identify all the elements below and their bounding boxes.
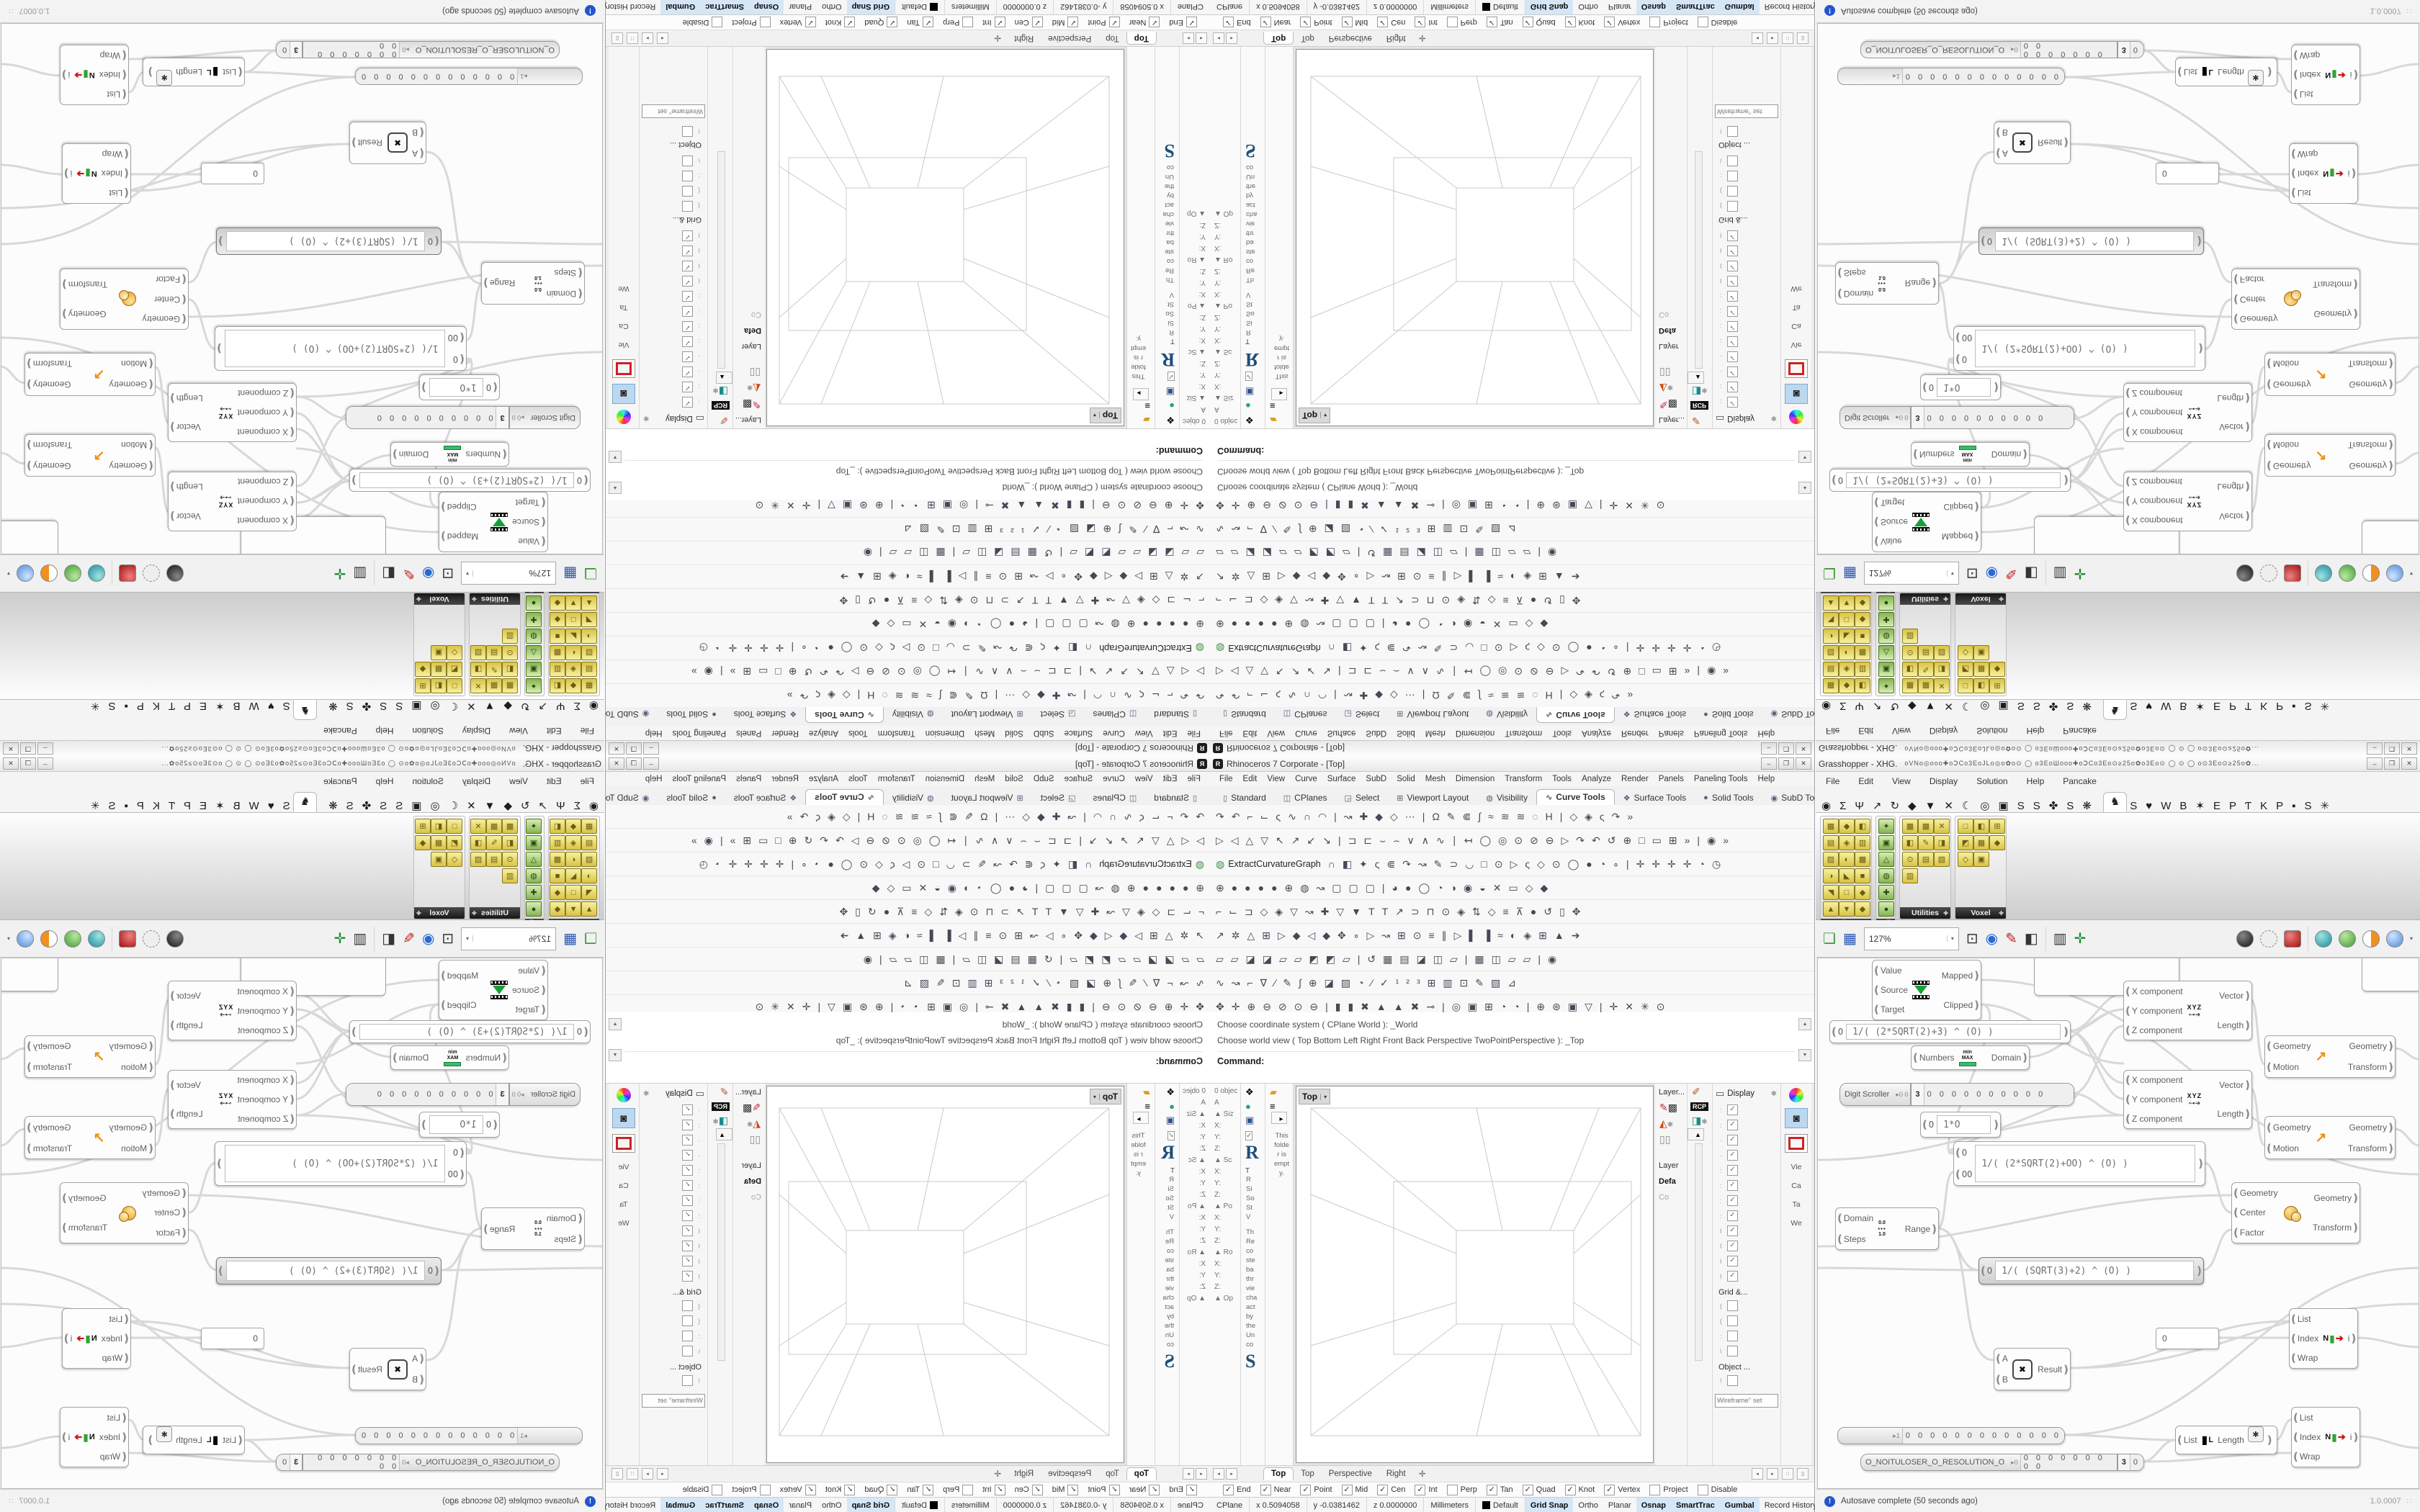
expression-text[interactable]: 1*O (429, 378, 483, 397)
checkbox[interactable]: ✓ (1260, 1485, 1271, 1495)
expression-text[interactable]: 1/( (2*SQRT(2)+3) ^ (O) ) (359, 1024, 574, 1040)
expression-text[interactable]: 1*O (1937, 378, 1991, 397)
osnap-item[interactable]: ✓ Int (1415, 1485, 1437, 1495)
display-option-row[interactable]: I ✓ (1713, 1238, 1780, 1254)
gh-number-slider[interactable]: ▸1 0 0 0 0 0 0 0 0 0 0 0 0 0 (1837, 1427, 2065, 1444)
toolbar-row-1[interactable]: ↷↶⌐⌙ς∿∩◠|↝✚◆◇⋯|Ω✎⋐∫≈≋≋◌Η|◇◈ς↷» (1216, 690, 1640, 702)
menu-item[interactable]: Panels (731, 729, 766, 737)
extract-curvature-graph-button[interactable]: ◍ ExtractCurvatureGraph (1099, 858, 1204, 870)
display-option-row[interactable]: : ✓ (1713, 334, 1780, 349)
menu-item[interactable]: Help (376, 776, 394, 786)
checkbox[interactable]: ✓ (1727, 1241, 1738, 1251)
zoom-extents-icon[interactable]: ⊡ (442, 564, 454, 582)
component-icon[interactable]: △ (526, 645, 542, 660)
menu-item[interactable]: Tools (843, 729, 873, 737)
checkbox[interactable] (962, 17, 973, 28)
menu-item[interactable]: Curve (1098, 729, 1130, 737)
viewport-tab[interactable]: Right (1007, 1468, 1041, 1480)
tab-scroll-right[interactable]: ▸ (1183, 32, 1194, 44)
display-option-row[interactable]: : ✓ (1713, 289, 1780, 304)
gh-node-list-item[interactable]: (List (Index (Wrap N▮➔ i) (2291, 45, 2360, 105)
expression-text[interactable]: 1*O (429, 1115, 483, 1134)
material-green-icon[interactable] (64, 930, 81, 948)
checkbox[interactable]: ✓ (1068, 17, 1079, 28)
close-button[interactable]: ✕ (3, 742, 19, 755)
component-icon[interactable]: ▩ (502, 819, 518, 834)
osnap-item[interactable]: ✓ Mid (1342, 1485, 1368, 1495)
panel-tab-label[interactable]: Vie (609, 341, 639, 359)
component-icon[interactable]: ◆ (1989, 662, 2005, 677)
component-icon[interactable]: ◧ (431, 819, 447, 834)
expand-icon[interactable]: ▸ (1133, 388, 1149, 400)
sketch-pen-icon[interactable]: ✎ (2005, 930, 2017, 948)
osnap-item[interactable]: Perp (943, 1485, 973, 1495)
gh-node-scale[interactable]: (Geometry (Center (Factor Geometry) Tran… (2231, 1182, 2360, 1243)
toolbar-tab[interactable]: ● Solid Tools (1695, 707, 1762, 721)
checkbox[interactable]: ✓ (682, 230, 693, 241)
menu-item[interactable]: Render (766, 775, 804, 783)
component-icon[interactable]: ◧ (1973, 819, 1989, 834)
checkbox[interactable]: ✓ (1727, 397, 1738, 408)
component-icon[interactable]: ▲ (581, 901, 597, 917)
expression-text[interactable]: 1/( (2*SQRT(2)+OO) ^ (O) ) (225, 1145, 445, 1182)
component-icon[interactable]: ▤ (1918, 852, 1934, 867)
gh-node-construct-domain[interactable]: (Numbers minMAX Domain) (390, 442, 509, 467)
checkbox[interactable] (1649, 17, 1660, 28)
panel-tab-label[interactable]: Ca (609, 1171, 639, 1190)
checkbox[interactable]: ✓ (682, 1271, 693, 1282)
component-icon[interactable]: ▼ (565, 595, 581, 611)
toolbar-tab[interactable]: ◲ Select (1032, 707, 1085, 721)
checkbox[interactable]: ✓ (1377, 17, 1388, 28)
rhino-titlebar[interactable]: R Rhinoceros 7 Corporate - [Top] – ❒ ✕ (1210, 756, 1814, 772)
component-icon[interactable]: ◑ (1823, 868, 1839, 883)
toolbar-row-4[interactable]: ⊕●●●●⊕◍↝▢▢▢|◕●◯◔◑◉◒✕▭◇◆ (1216, 882, 1555, 894)
menu-item[interactable]: Solution (412, 726, 443, 736)
checkbox[interactable]: ✓ (682, 1180, 693, 1191)
gh-node-move[interactable]: (Geometry (Motion ↗ Geometry) Transform) (2264, 1035, 2396, 1078)
toolbar-tab[interactable]: ◲ Select (1336, 707, 1389, 721)
asterisk-button[interactable]: ✱ (2248, 70, 2264, 86)
preview-eye-icon[interactable]: ◉ (1986, 930, 1998, 948)
menu-item[interactable]: View (1130, 729, 1158, 737)
scroll-down-button[interactable]: ▼ (1798, 451, 1811, 463)
spray-icon[interactable]: ✐ (708, 413, 732, 428)
component-icon[interactable]: ▥ (1855, 662, 1870, 677)
menu-item[interactable]: Help (1752, 729, 1780, 737)
component-icon[interactable]: ◨ (1934, 835, 1950, 850)
gh-node-list-item[interactable]: (List (Index (Wrap N▮➔ i) (60, 1407, 129, 1467)
preview-shaded-icon[interactable] (2284, 930, 2301, 948)
checkbox[interactable]: ✓ (682, 382, 693, 392)
nav-pane-icon[interactable]: ▯ (611, 32, 623, 44)
component-icon[interactable]: ◍ (1878, 629, 1894, 644)
viewport-top[interactable]: Top▾ (766, 1086, 1124, 1463)
checkbox[interactable]: ✓ (682, 1104, 693, 1115)
nav-pane-icon[interactable]: ▯ (1797, 32, 1809, 44)
folder-panel-sliver[interactable]: ▰ ≡ ▸ Thisfolder isempty. (1265, 1084, 1294, 1465)
gh-node-list-item[interactable]: (List (Index (Wrap N▮➔ i) (62, 143, 131, 204)
scroll-up-icon[interactable]: ▲ (716, 372, 732, 384)
checkbox[interactable]: ✓ (1604, 1485, 1615, 1495)
help-panel-sliver[interactable]: ❖ ● ▣ ✓ R T RSiSoStV ThRecostebathrviech… (1241, 1084, 1265, 1465)
osnap-item[interactable]: ✓ Mid (1052, 1485, 1079, 1495)
component-icon[interactable]: ▼ (565, 901, 581, 917)
color-wheel-icon[interactable] (1789, 1088, 1803, 1102)
menu-item[interactable]: Edit (1238, 729, 1263, 737)
preview-off-icon[interactable] (2236, 565, 2254, 582)
toolbar-row-3[interactable]: ∩◧✦ς⋐↷↝✎⊃◡□⊙▷ς◇⊙◯●◔∘|✛✛✛✛◔◷ (692, 642, 1092, 654)
minimize-button[interactable]: – (2367, 757, 2383, 770)
menu-item[interactable]: SubD (1028, 775, 1059, 783)
component-icon[interactable]: ◈ (565, 662, 581, 677)
open-file-icon[interactable]: ❏ (584, 930, 597, 948)
resize-grip-icon[interactable]: ∷ (2407, 7, 2411, 15)
checkbox[interactable]: ✓ (923, 1485, 933, 1495)
tools-panel-sliver[interactable]: ✐ RCP ◨✱ ▲ (1688, 1084, 1713, 1465)
gh-node-expression-small[interactable]: (O 1*O ) (1920, 1112, 2001, 1138)
toolbar-row-8[interactable]: ∿↝⌐∇∕✎∫⊕◪▨◔∕✓¹²³⊞▥⊡✎▧⊿ (897, 977, 1204, 989)
default-layer-name[interactable]: Defa (733, 1173, 765, 1189)
component-icon[interactable]: ◧ (1855, 819, 1870, 834)
checkbox-icon[interactable]: ✓ (1155, 372, 1179, 386)
gh-node-remap[interactable]: (Value (Source (Target Mapped) Clipped) (1872, 960, 1981, 1020)
menu-item[interactable]: File (1826, 776, 1839, 786)
category-tab-icons-right[interactable]: S♥WB✶EPƬKP▪S✳ (2130, 799, 2338, 812)
component-icon[interactable]: ✚ (1878, 885, 1894, 900)
component-icon[interactable]: ◥ (1823, 885, 1839, 900)
osnap-item[interactable]: ✓ Knot (1565, 17, 1595, 28)
toolbar-tab[interactable]: ◫ CPlanes (1275, 707, 1336, 721)
osnap-item[interactable]: ✓ Cen (1015, 17, 1043, 28)
checkbox[interactable]: ✓ (682, 397, 693, 408)
status-toggle[interactable]: Gumbal (660, 1498, 700, 1512)
component-icon[interactable]: ▣ (1878, 835, 1894, 850)
nav-split-icon[interactable]: ∷ (627, 32, 638, 44)
chevron-down-icon[interactable]: ▾ (7, 935, 10, 942)
close-button[interactable]: ✕ (609, 757, 624, 770)
material-teal-icon[interactable] (2315, 565, 2332, 582)
component-icon[interactable]: ✎ (1918, 662, 1934, 677)
maximize-button[interactable]: ❒ (2384, 757, 2400, 770)
display-option-row[interactable]: ( (640, 199, 707, 214)
gh-node-vector-xyz[interactable]: (X component (Y component (Z component X… (168, 472, 297, 531)
chevron-down-icon[interactable]: ▾ (2410, 935, 2413, 942)
status-toggle[interactable]: Grid Snap (1525, 0, 1574, 14)
component-icon[interactable]: ◆ (550, 595, 565, 611)
viewport-label[interactable]: Top▾ (1299, 1089, 1330, 1104)
pencil-icon[interactable]: ✎▩ (1655, 1099, 1687, 1115)
rhino-titlebar[interactable]: R Rhinoceros 7 Corporate - [Top] – ❒ ✕ (606, 756, 1210, 772)
component-icon[interactable]: ◧ (431, 678, 447, 693)
osnap-item[interactable]: ✓ Vertex (780, 1485, 816, 1495)
component-icon[interactable]: ▤ (581, 662, 597, 677)
menu-item[interactable]: Edit (1858, 726, 1873, 736)
material-orange-icon[interactable] (40, 930, 58, 948)
toolbar-tab[interactable]: ⊞ Viewport Layout (943, 791, 1032, 805)
checkbox[interactable]: ✓ (805, 1485, 816, 1495)
camera-widget-icon[interactable]: ◧ (382, 564, 395, 582)
panel-tab-strip[interactable]: ◙ VieCaTaWe (609, 47, 639, 428)
menu-item[interactable]: View (1892, 776, 1911, 786)
folder-panel-sliver[interactable]: ▰ ≡ ▸ Thisfolder isempty. (1265, 47, 1294, 428)
status-toggle[interactable]: Osnap (1636, 0, 1671, 14)
component-icon[interactable]: ▩ (1902, 819, 1918, 834)
component-icon[interactable]: ▣ (1973, 645, 1989, 660)
component-icon[interactable]: ◩ (1958, 662, 1973, 677)
toolbar-tab[interactable]: ▯ Standard (1214, 791, 1275, 805)
component-icon[interactable]: ▧ (470, 645, 486, 660)
gh-node-expression-selected[interactable]: (O 1/( (SQRT(3)+2) ^ (O) ) ) (216, 1257, 442, 1284)
display-option-row[interactable]: · ✓ (1713, 364, 1780, 379)
material-blue-icon[interactable] (2386, 565, 2403, 582)
status-toggle[interactable]: SmartTrac (1671, 0, 1720, 14)
add-viewport-icon[interactable]: ✛ (988, 33, 1007, 43)
component-icon[interactable]: ▦ (486, 819, 502, 834)
checkbox[interactable]: ✓ (682, 1210, 693, 1221)
osnap-item[interactable]: ✓ Mid (1342, 17, 1368, 28)
component-icon[interactable]: △ (1878, 852, 1894, 867)
menu-item[interactable]: SubD (1028, 729, 1059, 737)
component-icon[interactable]: ▲ (1823, 595, 1839, 611)
osnap-item[interactable]: ✓ Quad (1523, 17, 1556, 28)
menu-item[interactable]: Solution (1976, 726, 2007, 736)
menu-item[interactable]: Analyze (1577, 729, 1616, 737)
expression-text[interactable]: 1/( (2*SQRT(2)+OO) ^ (O) ) (1975, 1145, 2195, 1182)
checkbox[interactable]: ✓ (1109, 17, 1120, 28)
checkbox[interactable]: ✓ (1727, 1150, 1738, 1161)
gh-node-list-item[interactable]: (List (Index (Wrap N▮➔ i) (60, 45, 129, 105)
extract-curvature-graph-button[interactable]: ◍ ExtractCurvatureGraph (1099, 642, 1204, 654)
osnap-item[interactable]: ✓ Knot (825, 17, 856, 28)
checkbox[interactable]: ✓ (682, 291, 693, 302)
menu-item[interactable]: Edit (1158, 775, 1183, 783)
component-icon[interactable]: □ (565, 885, 581, 900)
checkbox[interactable]: ✓ (1186, 1485, 1197, 1495)
display-mode-dropdown[interactable]: Wireframe" set (1715, 104, 1778, 118)
cplane-cell[interactable]: CPlane (1210, 1498, 1250, 1512)
scroll-up-button[interactable]: ▲ (1798, 1018, 1811, 1030)
panel-tab-strip[interactable]: ◙ VieCaTaWe (1781, 1084, 1811, 1465)
checkbox[interactable] (1727, 1375, 1738, 1386)
camera-teal-icon[interactable]: ◨✱ (1688, 384, 1712, 400)
toolbar-row-2[interactable]: ▷◁△▽↖↗↙↘|⊐⊏⌣⌢∨∧∿∣↤◯◎⊙⊘⊖▷↷↶↺⊕□▭⊞»|◉» (1216, 834, 1736, 847)
component-icon[interactable]: ✕ (1934, 819, 1950, 834)
checkbox[interactable]: ✓ (1727, 1210, 1738, 1221)
checkbox[interactable]: ✓ (682, 1241, 693, 1251)
component-icon[interactable]: ◥ (581, 612, 597, 627)
checkbox[interactable]: ✓ (682, 1165, 693, 1176)
asterisk-button[interactable]: ✱ (156, 1426, 172, 1442)
close-button[interactable]: ✕ (1796, 742, 1811, 755)
component-icon[interactable]: ▤ (581, 835, 597, 850)
toolbar-tab[interactable]: ▯ Standard (1145, 791, 1206, 805)
material-green-icon[interactable] (2339, 565, 2356, 582)
viewport-tab[interactable]: Top (1263, 1467, 1294, 1480)
osnap-item[interactable]: Disable (1698, 17, 1738, 28)
component-icon[interactable]: ◈ (565, 835, 581, 850)
command-area[interactable]: Choose coordinate system ( CPlane World … (606, 1012, 1210, 1084)
menu-item[interactable]: Surface (1322, 729, 1361, 737)
menu-item[interactable]: Pancake (323, 776, 357, 786)
save-icon[interactable]: ▦ (563, 930, 577, 948)
scroll-down-button[interactable]: ▼ (609, 451, 622, 463)
checkbox[interactable] (682, 126, 693, 137)
component-icon[interactable]: ▥ (550, 662, 565, 677)
display-option-row[interactable]: : ✓ (640, 1208, 707, 1223)
minimize-button[interactable]: – (643, 742, 659, 755)
scroll-down-button[interactable]: ▼ (609, 1049, 622, 1061)
gh-node-vector-xyz[interactable]: (X component (Y component (Z component X… (2123, 472, 2252, 531)
component-icon[interactable]: ▦ (581, 819, 597, 834)
resize-grip-icon[interactable]: ∷ (9, 7, 13, 15)
component-icon[interactable]: ◆ (1839, 678, 1855, 693)
toolbar-tab[interactable]: ● Solid Tools (658, 707, 725, 721)
osnap-item[interactable]: ✓ Knot (1565, 1485, 1595, 1495)
osnap-item[interactable]: ✓ Vertex (1604, 17, 1640, 28)
osnap-item[interactable]: Disable (1698, 1485, 1738, 1495)
checkbox[interactable]: ✓ (1727, 1104, 1738, 1115)
status-toggle[interactable]: Planar (1603, 1498, 1636, 1512)
display-option-row[interactable]: : ✓ (1713, 379, 1780, 395)
component-icon[interactable]: ⊞ (1989, 678, 2005, 693)
checkbox[interactable]: ✓ (1727, 321, 1738, 332)
scrollbar[interactable] (1695, 1143, 1703, 1361)
component-icon[interactable]: ◣ (1839, 629, 1855, 644)
zoom-extents-icon[interactable]: ⊡ (1966, 930, 1978, 948)
expand-icon[interactable]: ▸ (1271, 1112, 1287, 1124)
component-icon[interactable]: ◆ (415, 835, 431, 850)
component-icon[interactable]: ▣ (431, 852, 447, 867)
component-icon[interactable]: ◨ (470, 835, 486, 850)
component-icon[interactable]: ◆ (565, 819, 581, 834)
checkbox[interactable]: ✓ (682, 306, 693, 317)
menu-item[interactable]: Dimension (920, 729, 969, 737)
menu-item[interactable]: SubD (1361, 729, 1391, 737)
component-icon[interactable]: ◧ (502, 835, 518, 850)
component-icon[interactable]: ◧ (1973, 678, 1989, 693)
gh-node-list-length[interactable]: (List ▮L Length ✱ ) (2175, 58, 2277, 86)
preview-shaded-icon[interactable] (2284, 565, 2301, 582)
gh-resolution-slider[interactable]: O_NOITULOSER_O_RESOLUTION_O ▸0 0 0 0 0 0… (276, 1454, 560, 1471)
active-layer-cell[interactable]: Default (895, 1498, 944, 1512)
component-icon[interactable]: ● (526, 901, 542, 917)
nav-left-icon[interactable]: ◂ (1752, 32, 1763, 44)
spray-icon[interactable]: ✐ (1688, 1084, 1712, 1099)
menu-item[interactable]: Curve (1290, 775, 1322, 783)
gh-node-list-item[interactable]: (List (Index (Wrap N▮➔ i) (2289, 143, 2358, 204)
osnap-item[interactable]: ✓ End (1169, 17, 1197, 28)
gh-node-remap[interactable]: (Value (Source (Target Mapped) Clipped) (439, 492, 548, 552)
component-icon[interactable]: ◩ (447, 662, 462, 677)
display-option-row[interactable]: ( (1713, 1313, 1780, 1328)
menu-item[interactable]: Mesh (1420, 775, 1451, 783)
component-icon[interactable]: ▦ (431, 662, 447, 677)
gh-node-list-item[interactable]: (List (Index (Wrap N▮➔ i) (62, 1308, 131, 1369)
color-wheel-icon[interactable] (1789, 410, 1803, 424)
component-icon[interactable]: ▧ (470, 852, 486, 867)
checkbox[interactable]: ✓ (1727, 336, 1738, 347)
minimize-button[interactable]: – (2367, 742, 2383, 755)
toolbar-row-9[interactable]: ✥✛⊕⊖⊘⊙⊖|▮▮✖▲▲✖⊸|◎▣⊞◔◔|⊕⊛▣▽|✛✕✳⊙ (1216, 500, 1672, 512)
checkbox[interactable] (760, 17, 771, 28)
add-viewport-icon[interactable]: ✛ (1413, 33, 1432, 43)
gh-node-scale[interactable]: (Geometry (Center (Factor Geometry) Tran… (60, 269, 189, 330)
camera-teal-icon[interactable]: ◨✱ (708, 384, 732, 400)
gh-node-vector-xyz[interactable]: (X component (Y component (Z component X… (2123, 981, 2252, 1040)
palette-label[interactable]: Voxel✚ (1955, 907, 2006, 919)
display-option-row[interactable]: I ✓ (640, 1254, 707, 1269)
osnap-item[interactable]: ✓ Point (1088, 1485, 1120, 1495)
tab-scroll-left[interactable]: ◂ (1213, 1468, 1224, 1480)
menu-item[interactable]: View (1262, 775, 1290, 783)
toolbar-tab[interactable]: ❖ Surface Tools (1615, 707, 1695, 721)
properties-panel-sliver[interactable]: 0 objecA▲ SizX:Y:Z:▲ ScX:Y:Z:▲ PoX:Y:Z:▲… (1210, 1084, 1241, 1465)
component-icon[interactable]: □ (447, 678, 462, 693)
menu-item[interactable]: Mesh (1420, 729, 1451, 737)
camera-tab-icon[interactable]: ◙ (612, 384, 635, 404)
gh-node-expression[interactable]: (O 1/( (2*SQRT(2)+3) ^ (O) ) ) (1829, 1020, 2071, 1043)
expression-text[interactable]: 1/( (2*SQRT(2)+OO) ^ (O) ) (1975, 330, 2195, 367)
display-option-row[interactable]: \ (640, 1344, 707, 1359)
osnap-item[interactable]: ✓ Knot (825, 1485, 856, 1495)
status-toggle[interactable]: Grid Snap (847, 1498, 895, 1512)
gear-icon[interactable]: ✱ (1771, 415, 1779, 423)
checkbox[interactable]: ✓ (682, 1256, 693, 1266)
expand-icon[interactable]: ▸ (1133, 1112, 1149, 1124)
display-panel[interactable]: ▭ Display ✱ : ✓ : ✓ (639, 47, 707, 428)
checkbox-icon[interactable]: ✓ (1241, 372, 1265, 386)
checkbox[interactable] (1447, 17, 1458, 28)
checkbox[interactable]: ✓ (682, 261, 693, 271)
display-mode-dropdown[interactable]: Wireframe" set (642, 104, 705, 118)
checkbox[interactable]: ✓ (1342, 1485, 1353, 1495)
preview-eye-icon[interactable]: ◉ (1986, 564, 1998, 582)
gh-node-range[interactable]: (Domain (Steps 0.0▪▪▪1.0 Range) (1835, 262, 1939, 305)
tab-scroll-right[interactable]: ▸ (1226, 1468, 1237, 1480)
component-icon[interactable]: △ (1878, 645, 1894, 660)
component-icon[interactable]: ▨ (1823, 852, 1839, 867)
gumball-antenna-icon[interactable]: ✛ (334, 564, 346, 582)
display-option-row[interactable]: ( (1713, 184, 1780, 199)
gh-node-expression-selected[interactable]: (O 1/( (SQRT(3)+2) ^ (O) ) ) (1978, 228, 2204, 255)
scroll-up-button[interactable]: ▲ (609, 482, 622, 494)
menu-item[interactable]: Dimension (1451, 729, 1500, 737)
gh-node-vector-xyz[interactable]: (X component (Y component (Z component X… (2123, 383, 2252, 442)
gh-node-expression-small[interactable]: (O 1*O ) (419, 374, 500, 400)
component-icon[interactable]: ■ (550, 629, 565, 644)
osnap-item[interactable]: ✓ Vertex (1604, 1485, 1640, 1495)
menu-item[interactable]: Solid (1000, 729, 1028, 737)
menu-item[interactable]: Solid (1391, 729, 1420, 737)
panel-tab-label[interactable]: Vie (1781, 341, 1811, 359)
component-icon[interactable]: □ (447, 819, 462, 834)
display-option-row[interactable]: : ✓ (640, 1193, 707, 1208)
component-icon[interactable]: ▣ (526, 835, 542, 850)
display-option-row[interactable]: · ✓ (1713, 1133, 1780, 1148)
display-option-row[interactable]: I ✓ (1713, 274, 1780, 289)
camera-widget-icon[interactable]: ◧ (382, 930, 395, 948)
component-icon[interactable]: ▣ (1878, 662, 1894, 677)
checkbox[interactable]: ✓ (1186, 17, 1197, 28)
display-option-row[interactable]: : ✓ (640, 379, 707, 395)
checkbox[interactable] (1727, 1315, 1738, 1326)
checkbox[interactable]: ✓ (1727, 1225, 1738, 1236)
cplane-cell[interactable]: CPlane (1170, 0, 1210, 14)
status-toggle[interactable]: Planar (784, 1498, 817, 1512)
component-icon[interactable]: □ (1958, 819, 1973, 834)
add-viewport-icon[interactable]: ✛ (1413, 1469, 1432, 1479)
